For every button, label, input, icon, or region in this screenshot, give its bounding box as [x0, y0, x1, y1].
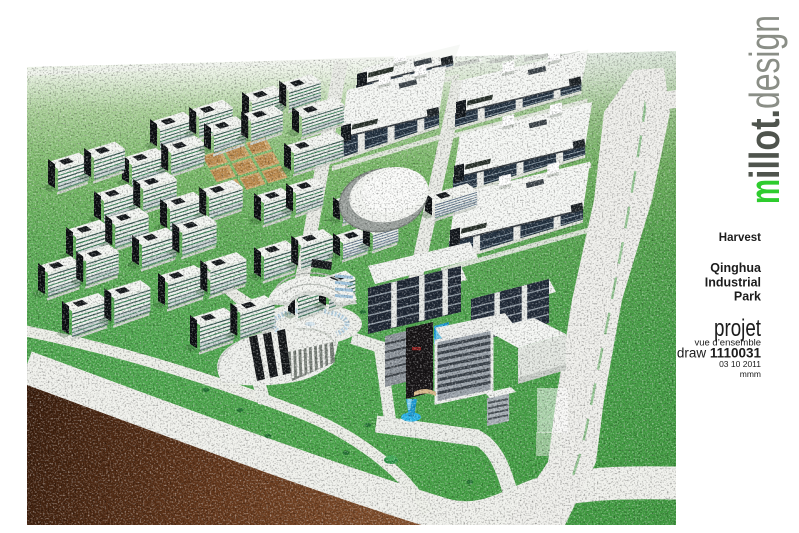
svg-text:Harvest: Harvest	[719, 232, 761, 244]
svg-text:Park: Park	[734, 290, 761, 304]
svg-text:03 10 2011: 03 10 2011	[719, 359, 761, 369]
svg-text:Qinghua: Qinghua	[710, 261, 762, 275]
svg-text:millot.design: millot.design	[741, 15, 788, 204]
svg-text:Industrial: Industrial	[705, 276, 761, 290]
svg-text:mmm: mmm	[740, 369, 761, 379]
